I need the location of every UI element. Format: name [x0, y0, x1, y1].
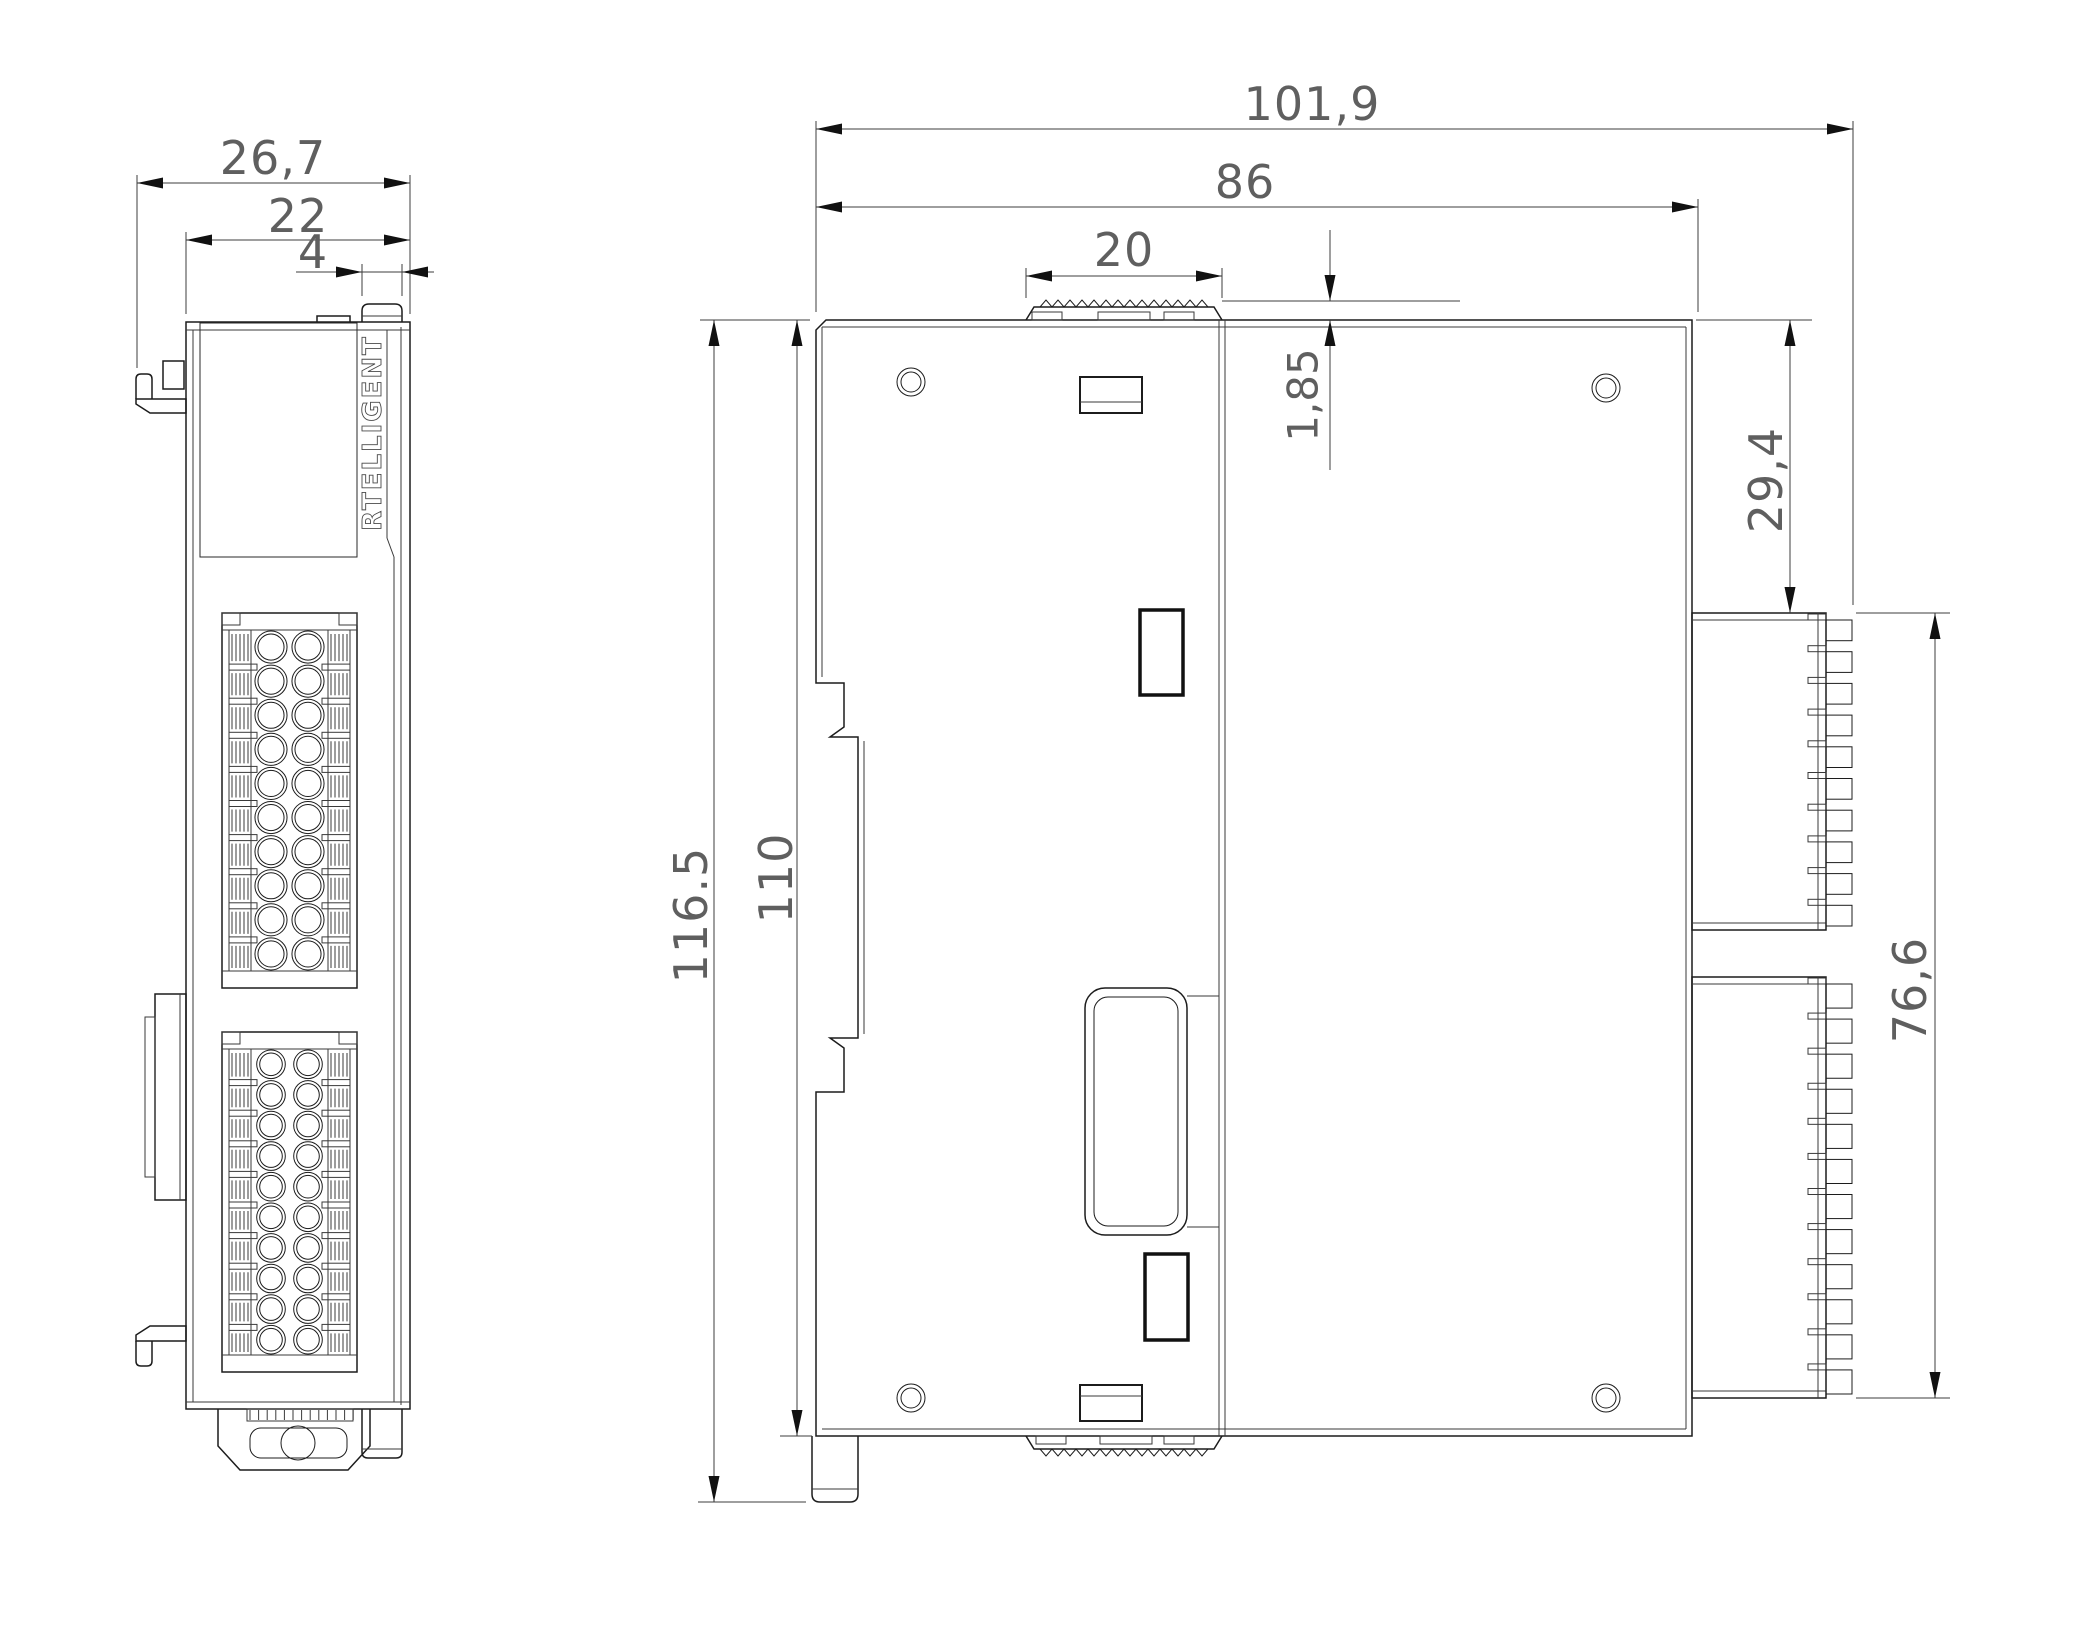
- front-side-tab: [145, 994, 186, 1200]
- dim-connectors-span: 76,6: [1883, 937, 1937, 1043]
- dim-slider-protrusion: 1,85: [1279, 348, 1328, 442]
- dim-body-height: 110: [749, 833, 803, 924]
- din-release-lever: [1085, 988, 1219, 1235]
- brand-logo-text: RTELLIGENT: [358, 335, 388, 531]
- dim-front-total-width: 26,7: [220, 131, 326, 185]
- din-slider-bottom-tab: [1026, 1436, 1222, 1456]
- dim-total-height: 116.5: [664, 847, 718, 984]
- front-label-area: [200, 323, 357, 557]
- dim-front-button-width: 4: [298, 225, 328, 279]
- terminal-block: [222, 613, 357, 988]
- front-bottom-latch: [218, 1409, 402, 1470]
- front-view: RTELLIGENT: [136, 304, 410, 1470]
- side-screw-holes: [897, 368, 1620, 1412]
- side-bottom-latch-tab: [812, 1436, 858, 1502]
- front-din-hook-bottom: [136, 1326, 186, 1366]
- side-slots: [1080, 377, 1188, 1421]
- dimension-lines: [137, 129, 1935, 1502]
- technical-drawing: RTELLIGENT: [0, 0, 2090, 1651]
- side-body-outline: [816, 320, 1692, 1436]
- extension-lines: [137, 121, 1950, 1502]
- drawing-canvas: RTELLIGENT: [0, 0, 2090, 1651]
- dim-connector-top-offset: 29,4: [1739, 427, 1793, 533]
- front-terminal-blocks: [222, 613, 357, 1372]
- din-slider-top-tab: [1026, 300, 1222, 320]
- dim-din-slider-width: 20: [1094, 223, 1155, 277]
- front-top-button: [317, 304, 402, 322]
- dim-side-body-depth: 86: [1215, 155, 1276, 209]
- side-terminal-connectors: [1692, 613, 1852, 1398]
- side-view: [812, 300, 1852, 1502]
- terminal-block: [222, 1032, 357, 1372]
- side-connector-block: [1692, 613, 1852, 930]
- din-slider-channel: [1219, 320, 1225, 1436]
- dimensions: 26,7 22 4 101,9 86 20 1,85 29,4 76,6 116…: [137, 77, 1950, 1502]
- front-din-hook-top: [136, 361, 186, 413]
- latch-serration-ticks: [250, 1410, 353, 1420]
- side-connector-block: [1692, 977, 1852, 1398]
- dim-side-total-depth: 101,9: [1244, 77, 1381, 131]
